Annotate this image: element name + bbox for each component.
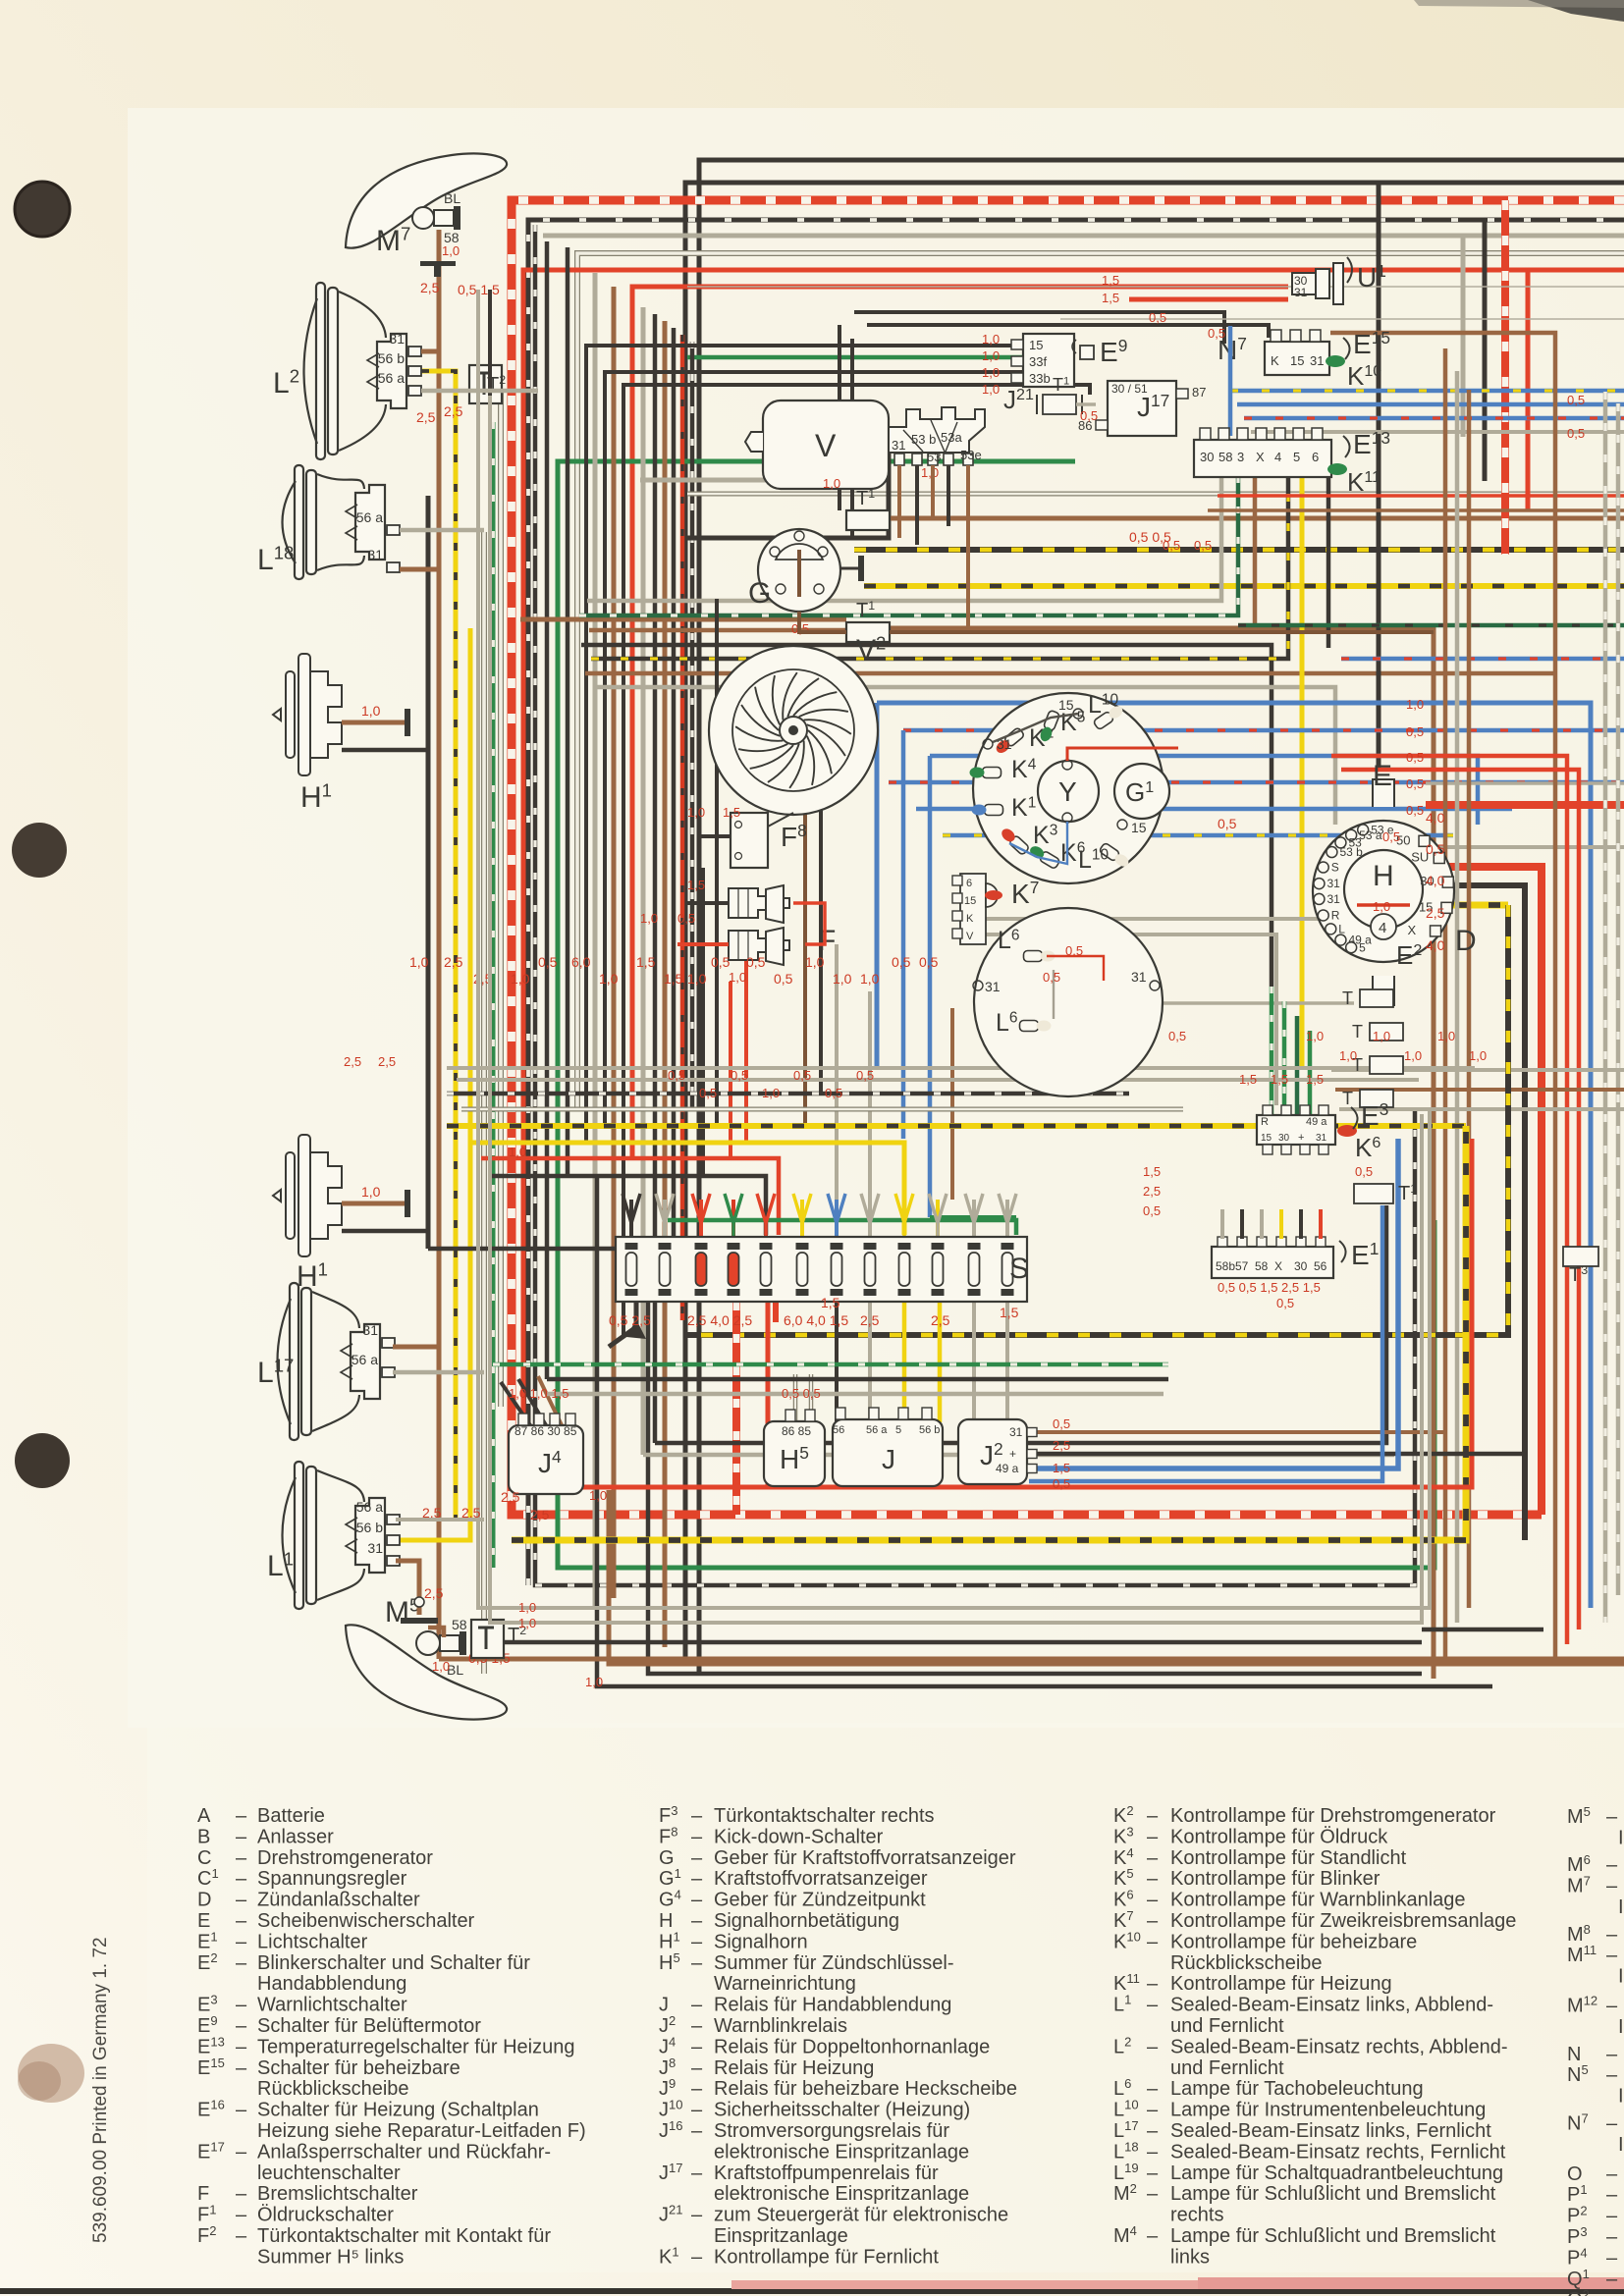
svg-text:56: 56: [1314, 1259, 1327, 1273]
svg-text:Schalter für Heizung (Schaltpl: Schalter für Heizung (Schaltplan: [257, 2100, 539, 2121]
svg-text:0,5: 0,5: [711, 954, 731, 970]
svg-text:1,5: 1,5: [1306, 1072, 1324, 1087]
svg-text:4,0: 4,0: [1426, 873, 1445, 888]
svg-text:Sealed-Beam-Einsatz rechts, Fe: Sealed-Beam-Einsatz rechts, Fernlicht: [1170, 2141, 1506, 2163]
svg-text:Geber für Zündzeitpunkt: Geber für Zündzeitpunkt: [714, 1890, 926, 1911]
svg-text:X: X: [1274, 1259, 1282, 1273]
svg-text:L: L: [1338, 922, 1345, 935]
svg-text:T: T: [1352, 1022, 1363, 1041]
svg-text:2,5: 2,5: [1053, 1438, 1070, 1453]
svg-text:2,5: 2,5: [416, 409, 436, 425]
svg-text:2,5 4,0 2,5: 2,5 4,0 2,5: [687, 1312, 752, 1328]
svg-text:–: –: [236, 1826, 247, 1847]
svg-text:Anlasser: Anlasser: [257, 1826, 334, 1847]
svg-text:–: –: [236, 1995, 247, 2016]
svg-text:0,5: 0,5: [1143, 1203, 1161, 1218]
svg-text:F: F: [818, 925, 836, 957]
svg-text:1,0: 1,0: [585, 1675, 603, 1689]
svg-text:31: 31: [1316, 1133, 1327, 1144]
svg-text:–: –: [236, 1868, 247, 1890]
svg-text:87: 87: [1192, 385, 1206, 400]
svg-text:0,5: 0,5: [1567, 426, 1585, 441]
svg-text:0,5: 0,5: [825, 1086, 842, 1100]
svg-text:Öldruckschalter: Öldruckschalter: [257, 2205, 394, 2226]
svg-text:–: –: [1606, 2269, 1618, 2290]
svg-text:T: T: [1342, 988, 1353, 1008]
svg-text:53 b: 53 b: [911, 432, 936, 447]
svg-text:Warnlichtschalter: Warnlichtschalter: [257, 1995, 407, 2016]
svg-text:Bremslichtschalter: Bremslichtschalter: [257, 2183, 418, 2205]
svg-text:15: 15: [1029, 338, 1043, 352]
svg-text:1,0: 1,0: [432, 1659, 450, 1674]
svg-text:Einspritzanlage: Einspritzanlage: [714, 2225, 848, 2247]
svg-text:1,5: 1,5: [1102, 291, 1119, 305]
svg-text:0,5: 0,5: [892, 954, 911, 970]
svg-text:links: links: [1170, 2246, 1210, 2268]
svg-text:–: –: [236, 1805, 247, 1827]
svg-text:Relais für Handabblendung: Relais für Handabblendung: [714, 1995, 951, 2016]
svg-text:–: –: [691, 2246, 703, 2268]
svg-text:1,0: 1,0: [1339, 1048, 1357, 1063]
svg-text:15: 15: [1290, 353, 1304, 368]
svg-text:Blinkerschalter und Schalter f: Blinkerschalter und Schalter für: [257, 1952, 530, 1974]
svg-text:31: 31: [1326, 877, 1340, 890]
svg-text:6,0: 6,0: [571, 954, 591, 970]
svg-text:1,0: 1,0: [762, 1086, 780, 1100]
svg-text:53 a: 53 a: [1359, 828, 1382, 842]
svg-text:A: A: [197, 1805, 211, 1827]
svg-text:2,5: 2,5: [1143, 1184, 1161, 1199]
svg-text:1,0: 1,0: [1306, 1029, 1324, 1043]
svg-text:0,5 0,5 1,5 2,5 1,5: 0,5 0,5 1,5 2,5 1,5: [1218, 1280, 1321, 1295]
svg-text:0,5: 0,5: [731, 1068, 748, 1083]
svg-text:58b: 58b: [1216, 1259, 1235, 1273]
svg-text:Sealed-Beam-Einsatz links, Fer: Sealed-Beam-Einsatz links, Fernlicht: [1170, 2120, 1491, 2142]
svg-text:2,5: 2,5: [860, 1312, 880, 1328]
svg-text:–: –: [1147, 1868, 1159, 1890]
svg-text:0,5: 0,5: [1406, 803, 1424, 818]
svg-text:R: R: [1261, 1116, 1269, 1128]
svg-text:0,5: 0,5: [538, 954, 558, 970]
svg-text:elektronische Einspritzanlage: elektronische Einspritzanlage: [714, 2183, 969, 2205]
svg-text:1,0: 1,0: [640, 911, 658, 926]
svg-text:C: C: [197, 1847, 211, 1869]
svg-text:1,0: 1,0: [729, 970, 746, 985]
svg-text:0,5: 0,5: [919, 954, 939, 970]
svg-text:0,5: 0,5: [774, 971, 793, 987]
svg-text:2,5: 2,5: [378, 1054, 396, 1069]
svg-text:4,0: 4,0: [1426, 937, 1445, 953]
svg-text:I: I: [1618, 2134, 1624, 2156]
svg-text:–: –: [1147, 1973, 1159, 1995]
svg-text:Handabblendung: Handabblendung: [257, 1973, 406, 1995]
svg-text:–: –: [236, 2141, 247, 2163]
svg-text:Relais für beheizbare Hecksche: Relais für beheizbare Heckscheibe: [714, 2078, 1017, 2100]
svg-text:–: –: [1606, 1996, 1618, 2017]
svg-text:1,0: 1,0: [1437, 1029, 1455, 1043]
svg-text:Summer H⁵ links: Summer H⁵ links: [257, 2246, 404, 2268]
svg-text:Kontrollampe für beheizbare: Kontrollampe für beheizbare: [1170, 1931, 1417, 1952]
svg-text:–: –: [1147, 2120, 1159, 2142]
svg-text:zum Steuergerät für elektronis: zum Steuergerät für elektronische: [714, 2205, 1008, 2226]
svg-text:1,5: 1,5: [723, 805, 740, 820]
svg-text:I: I: [1618, 1827, 1624, 1848]
svg-text:86 85: 86 85: [782, 1424, 811, 1438]
svg-text:Sealed-Beam-Einsatz links, Abb: Sealed-Beam-Einsatz links, Abblend-: [1170, 1995, 1493, 2016]
svg-text:0,5: 0,5: [699, 1086, 717, 1100]
svg-text:–: –: [1606, 1924, 1618, 1946]
svg-text:S: S: [1009, 1253, 1029, 1285]
svg-text:Kraftstoffvorratsanzeiger: Kraftstoffvorratsanzeiger: [714, 1868, 928, 1890]
svg-text:–: –: [691, 1868, 703, 1890]
svg-text:K: K: [966, 913, 974, 925]
svg-text:Rückblickscheibe: Rückblickscheibe: [257, 2078, 409, 2100]
svg-text:–: –: [691, 2100, 703, 2121]
svg-text:1,0: 1,0: [1406, 697, 1424, 712]
svg-text:–: –: [1606, 2184, 1618, 2206]
svg-text:33f: 33f: [1029, 354, 1047, 369]
svg-text:58: 58: [452, 1617, 467, 1632]
svg-text:Lampe für Schlußlicht und Brem: Lampe für Schlußlicht und Bremslicht: [1170, 2225, 1496, 2247]
svg-text:B: B: [197, 1826, 210, 1847]
svg-text:1,0: 1,0: [518, 1600, 536, 1615]
svg-text:Kontrollampe für Blinker: Kontrollampe für Blinker: [1170, 1868, 1380, 1890]
svg-text:0,5: 0,5: [668, 1068, 685, 1083]
svg-text:5: 5: [1293, 450, 1300, 464]
svg-text:1,5: 1,5: [1000, 1305, 1019, 1320]
svg-text:31: 31: [1294, 286, 1308, 299]
svg-text:–: –: [1606, 2044, 1618, 2065]
svg-text:–: –: [691, 2015, 703, 2037]
svg-text:–: –: [691, 1847, 703, 1869]
svg-text:53e: 53e: [960, 448, 982, 462]
svg-text:1,0: 1,0: [518, 1616, 536, 1630]
svg-text:Relais für Heizung: Relais für Heizung: [714, 2057, 874, 2079]
svg-text:31: 31: [362, 1322, 378, 1338]
svg-text:31: 31: [985, 979, 1001, 994]
svg-text:Kontrollampe für Warnblinkanla: Kontrollampe für Warnblinkanlage: [1170, 1890, 1466, 1911]
svg-text:–: –: [236, 1952, 247, 1974]
svg-text:2,5: 2,5: [424, 1585, 444, 1601]
svg-text:58: 58: [1255, 1259, 1269, 1273]
svg-text:15: 15: [964, 895, 976, 907]
svg-text:Summer für Zündschlüssel-: Summer für Zündschlüssel-: [714, 1952, 954, 1974]
svg-text:X: X: [1408, 923, 1417, 937]
svg-text:1,0: 1,0: [589, 1488, 607, 1503]
svg-text:Türkontaktschalter rechts: Türkontaktschalter rechts: [714, 1805, 935, 1827]
svg-text:J: J: [659, 1995, 669, 2016]
svg-text:1,0: 1,0: [805, 954, 825, 970]
svg-text:0,5 2,5: 0,5 2,5: [609, 1312, 651, 1328]
svg-text:2,5: 2,5: [444, 403, 463, 419]
svg-text:I: I: [1618, 1966, 1624, 1988]
svg-text:F: F: [197, 2183, 209, 2205]
svg-text:Lampe für Tachobeleuchtung: Lampe für Tachobeleuchtung: [1170, 2078, 1424, 2100]
svg-text:31: 31: [1326, 892, 1340, 906]
svg-text:31: 31: [1131, 969, 1147, 985]
svg-text:N: N: [1567, 2044, 1581, 2065]
svg-text:0,5: 0,5: [1406, 776, 1424, 791]
svg-text:–: –: [1147, 2100, 1159, 2121]
svg-text:49 a: 49 a: [1306, 1116, 1327, 1128]
svg-text:49 a: 49 a: [996, 1462, 1019, 1475]
svg-text:4: 4: [1379, 920, 1386, 936]
svg-text:–: –: [1606, 2163, 1618, 2185]
svg-text:–: –: [1147, 2225, 1159, 2247]
svg-text:Q2: Q2: [1567, 2287, 1590, 2296]
svg-text:1,0: 1,0: [982, 332, 1000, 347]
svg-text:Y: Y: [1058, 776, 1077, 807]
svg-text:2,5: 2,5: [444, 954, 463, 970]
svg-text:Signalhornbetätigung: Signalhornbetätigung: [714, 1910, 899, 1932]
svg-text:D: D: [197, 1890, 211, 1911]
svg-text:1,0: 1,0: [1373, 899, 1390, 914]
svg-text:–: –: [691, 1931, 703, 1952]
svg-text:R: R: [1331, 908, 1340, 922]
svg-text:–: –: [236, 1910, 247, 1932]
svg-text:I: I: [1618, 2086, 1624, 2108]
svg-text:–: –: [691, 2205, 703, 2226]
svg-text:–: –: [1606, 2112, 1618, 2134]
svg-text:–: –: [691, 1826, 703, 1847]
svg-text:Temperaturregelschalter für He: Temperaturregelschalter für Heizung: [257, 2036, 575, 2057]
svg-text:0,5: 0,5: [1567, 393, 1585, 407]
svg-text:56 a: 56 a: [352, 1352, 378, 1367]
svg-text:Lampe für Schlußlicht und Brem: Lampe für Schlußlicht und Bremslicht: [1170, 2183, 1496, 2205]
svg-text:1,0: 1,0: [982, 348, 1000, 363]
svg-text:–: –: [1147, 2141, 1159, 2163]
svg-text:I: I: [1618, 1896, 1624, 1918]
svg-text:15: 15: [1261, 1133, 1272, 1144]
svg-text:0,5: 0,5: [1194, 538, 1212, 553]
svg-text:Kick-down-Schalter: Kick-down-Schalter: [714, 1826, 884, 1847]
svg-text:1,5: 1,5: [1239, 1072, 1257, 1087]
svg-text:–: –: [236, 1847, 247, 1869]
svg-text:+: +: [1298, 1132, 1304, 1144]
svg-text:–: –: [1606, 2206, 1618, 2227]
svg-text:S: S: [1331, 861, 1339, 875]
svg-text:4,0: 4,0: [1426, 810, 1445, 826]
svg-text:1,0: 1,0: [409, 954, 429, 970]
svg-text:Lichtschalter: Lichtschalter: [257, 1931, 368, 1952]
svg-text:0,5: 0,5: [1406, 750, 1424, 765]
svg-text:–: –: [1147, 1805, 1159, 1827]
svg-text:leuchtenschalter: leuchtenschalter: [257, 2163, 401, 2184]
svg-text:rechts: rechts: [1170, 2205, 1223, 2226]
svg-text:1,5: 1,5: [1102, 273, 1119, 288]
svg-text:Signalhorn: Signalhorn: [714, 1931, 808, 1952]
svg-text:H: H: [1373, 860, 1394, 892]
svg-text:0,5: 0,5: [1080, 408, 1098, 423]
svg-text:Kontrollampe für Fernlicht: Kontrollampe für Fernlicht: [714, 2246, 939, 2268]
svg-text:56 a: 56 a: [356, 1499, 383, 1515]
svg-text:6: 6: [1312, 450, 1319, 464]
svg-text:–: –: [236, 2100, 247, 2121]
svg-text:1,0: 1,0: [687, 971, 707, 987]
svg-text:56 a: 56 a: [378, 370, 405, 386]
svg-text:Kraftstoffpumpenrelais für: Kraftstoffpumpenrelais für: [714, 2163, 939, 2184]
svg-text:0,5: 0,5: [1053, 1476, 1070, 1491]
svg-text:0,5: 0,5: [1218, 816, 1237, 831]
svg-text:0,5: 0,5: [856, 1068, 874, 1083]
svg-text:1,0: 1,0: [982, 382, 1000, 397]
svg-text:15: 15: [1131, 820, 1147, 835]
svg-text:Rückblickscheibe: Rückblickscheibe: [1170, 1952, 1323, 1974]
svg-text:elektronische Einspritzanlage: elektronische Einspritzanlage: [714, 2141, 969, 2163]
svg-text:Schalter für beheizbare: Schalter für beheizbare: [257, 2057, 460, 2079]
svg-text:0,5: 0,5: [1406, 724, 1424, 739]
svg-text:Kontrollampe für Heizung: Kontrollampe für Heizung: [1170, 1973, 1392, 1995]
svg-text:E: E: [1373, 760, 1392, 792]
svg-text:I: I: [1618, 2016, 1624, 2038]
svg-text:0,5: 0,5: [1168, 1029, 1186, 1043]
svg-text:30: 30: [1294, 1259, 1308, 1273]
svg-text:Scheibenwischerschalter: Scheibenwischerschalter: [257, 1910, 475, 1932]
svg-text:31: 31: [367, 1540, 383, 1556]
svg-text:33b: 33b: [1029, 371, 1051, 386]
svg-text:57: 57: [1235, 1259, 1249, 1273]
svg-text:58: 58: [1218, 450, 1232, 464]
svg-text:1,0: 1,0: [599, 971, 619, 987]
svg-text:–: –: [236, 2036, 247, 2057]
svg-text:Warnblinkrelais: Warnblinkrelais: [714, 2015, 847, 2037]
svg-text:31: 31: [1310, 353, 1324, 368]
svg-text:–: –: [1606, 2289, 1618, 2296]
svg-text:53a: 53a: [941, 430, 962, 445]
svg-text:1,0: 1,0: [361, 1184, 381, 1200]
svg-text:–: –: [1606, 2226, 1618, 2248]
svg-text:K: K: [1271, 353, 1279, 368]
svg-text:53 b: 53 b: [1339, 845, 1363, 859]
svg-text:–: –: [1147, 2036, 1159, 2057]
svg-text:Kontrollampe für Öldruck: Kontrollampe für Öldruck: [1170, 1826, 1388, 1847]
svg-text:1,5: 1,5: [1143, 1164, 1161, 1179]
svg-text:–: –: [691, 1952, 703, 1974]
svg-text:0,5: 0,5: [1043, 970, 1060, 985]
svg-text:56 b: 56 b: [378, 350, 405, 366]
svg-text:Kontrollampe für Zweikreisbrem: Kontrollampe für Zweikreisbremsanlage: [1170, 1910, 1516, 1932]
svg-text:–: –: [1147, 2163, 1159, 2184]
svg-text:X: X: [1256, 450, 1265, 464]
svg-text:–: –: [691, 2057, 703, 2079]
svg-text:Heizung siehe Reparatur-Leitfa: Heizung siehe Reparatur-Leitfaden F): [257, 2120, 586, 2142]
svg-text:Drehstromgenerator: Drehstromgenerator: [257, 1847, 433, 1869]
svg-text:–: –: [691, 2078, 703, 2100]
svg-text:31: 31: [892, 438, 905, 453]
svg-text:0,5: 0,5: [1149, 310, 1166, 325]
svg-text:0,5: 0,5: [746, 954, 766, 970]
svg-text:15: 15: [1058, 697, 1074, 713]
svg-text:Schalter für Belüftermotor: Schalter für Belüftermotor: [257, 2015, 481, 2037]
svg-text:–: –: [1147, 1995, 1159, 2016]
svg-text:Zündanlaßschalter: Zündanlaßschalter: [257, 1890, 420, 1911]
svg-text:Geber für Kraftstoffvorratsanz: Geber für Kraftstoffvorratsanzeiger: [714, 1847, 1016, 1869]
svg-text:0,5: 0,5: [1163, 538, 1180, 553]
svg-text:Anlaßsperrschalter und Rückfah: Anlaßsperrschalter und Rückfahr-: [257, 2141, 551, 2163]
svg-text:1,0: 1,0: [1404, 1048, 1422, 1063]
svg-text:–: –: [691, 1910, 703, 1932]
svg-text:Lampe für Instrumentenbeleucht: Lampe für Instrumentenbeleuchtung: [1170, 2100, 1486, 2121]
svg-text:J: J: [882, 1444, 895, 1474]
svg-text:–: –: [691, 1805, 703, 1827]
svg-text:1,0: 1,0: [361, 703, 381, 719]
svg-text:1,5: 1,5: [687, 878, 705, 892]
svg-text:V: V: [966, 931, 974, 942]
svg-text:–: –: [691, 1995, 703, 2016]
svg-text:30: 30: [1200, 450, 1214, 464]
svg-text:1,5: 1,5: [1053, 1461, 1070, 1475]
svg-text:56 b: 56 b: [919, 1424, 940, 1436]
svg-text:–: –: [691, 1890, 703, 1911]
svg-text:–: –: [691, 2120, 703, 2142]
svg-text:0,5: 0,5: [1276, 1296, 1294, 1310]
svg-text:und Fernlicht: und Fernlicht: [1170, 2057, 1284, 2079]
svg-text:0,5: 0,5: [793, 1068, 811, 1083]
svg-text:E: E: [197, 1910, 210, 1932]
svg-text:53: 53: [927, 450, 941, 464]
svg-text:–: –: [1606, 1854, 1618, 1876]
svg-text:–: –: [1606, 1876, 1618, 1897]
svg-text:1,0 1,0 1,5: 1,0 1,0 1,5: [509, 1386, 568, 1401]
svg-text:–: –: [1606, 2247, 1618, 2269]
svg-text:0,5: 0,5: [1355, 1164, 1373, 1179]
svg-text:Warneinrichtung: Warneinrichtung: [714, 1973, 856, 1995]
svg-text:4: 4: [1274, 450, 1281, 464]
svg-text:–: –: [1606, 1806, 1618, 1828]
svg-text:Batterie: Batterie: [257, 1805, 325, 1827]
svg-text:–: –: [1147, 1910, 1159, 1932]
svg-text:Stromversorgungsrelais für: Stromversorgungsrelais für: [714, 2120, 949, 2142]
svg-text:Relais für Doppeltonhornanlage: Relais für Doppeltonhornanlage: [714, 2036, 990, 2057]
svg-text:2,5: 2,5: [344, 1054, 361, 1069]
svg-text:1,5: 1,5: [636, 954, 656, 970]
svg-text:0,5: 0,5: [1426, 841, 1445, 857]
svg-text:T: T: [1342, 1089, 1353, 1108]
svg-text:Türkontaktschalter mit Kontakt: Türkontaktschalter mit Kontakt für: [257, 2225, 551, 2247]
svg-text:–: –: [1147, 1890, 1159, 1911]
svg-text:56: 56: [833, 1424, 844, 1436]
svg-text:–: –: [236, 2183, 247, 2205]
svg-text:0,5: 0,5: [677, 911, 695, 926]
svg-text:1,0: 1,0: [921, 465, 939, 480]
svg-text:5: 5: [895, 1424, 901, 1436]
svg-text:–: –: [236, 2015, 247, 2037]
svg-text:31: 31: [1009, 1425, 1023, 1439]
svg-text:1,0: 1,0: [823, 476, 840, 491]
svg-text:6: 6: [966, 878, 972, 889]
svg-text:0,5 0,5: 0,5 0,5: [782, 1386, 821, 1401]
svg-text:31: 31: [389, 331, 405, 347]
svg-text:56 a: 56 a: [356, 509, 383, 525]
svg-text:Sealed-Beam-Einsatz rechts, Ab: Sealed-Beam-Einsatz rechts, Abblend-: [1170, 2036, 1508, 2057]
svg-text:1,0: 1,0: [982, 365, 1000, 380]
svg-text:539.609.00 Printed in Germany: 539.609.00 Printed in Germany 1. 72: [90, 1937, 111, 2243]
svg-text:30 / 51: 30 / 51: [1111, 382, 1148, 396]
svg-text:2,5: 2,5: [420, 280, 440, 295]
svg-text:–: –: [236, 2225, 247, 2247]
svg-text:–: –: [1147, 2183, 1159, 2205]
svg-text:–: –: [1147, 2078, 1159, 2100]
svg-text:30: 30: [1278, 1133, 1290, 1144]
svg-text:56 a: 56 a: [866, 1424, 888, 1436]
svg-text:–: –: [1147, 1847, 1159, 1869]
svg-text:1,0: 1,0: [1469, 1048, 1487, 1063]
svg-text:–: –: [1606, 1945, 1618, 1966]
svg-text:BL: BL: [444, 190, 460, 206]
svg-text:Sicherheitsschalter (Heizung): Sicherheitsschalter (Heizung): [714, 2100, 970, 2121]
svg-text:Lampe für Schaltquadrantbeleuc: Lampe für Schaltquadrantbeleuchtung: [1170, 2163, 1503, 2184]
svg-text:87 86 30 85: 87 86 30 85: [514, 1424, 577, 1438]
